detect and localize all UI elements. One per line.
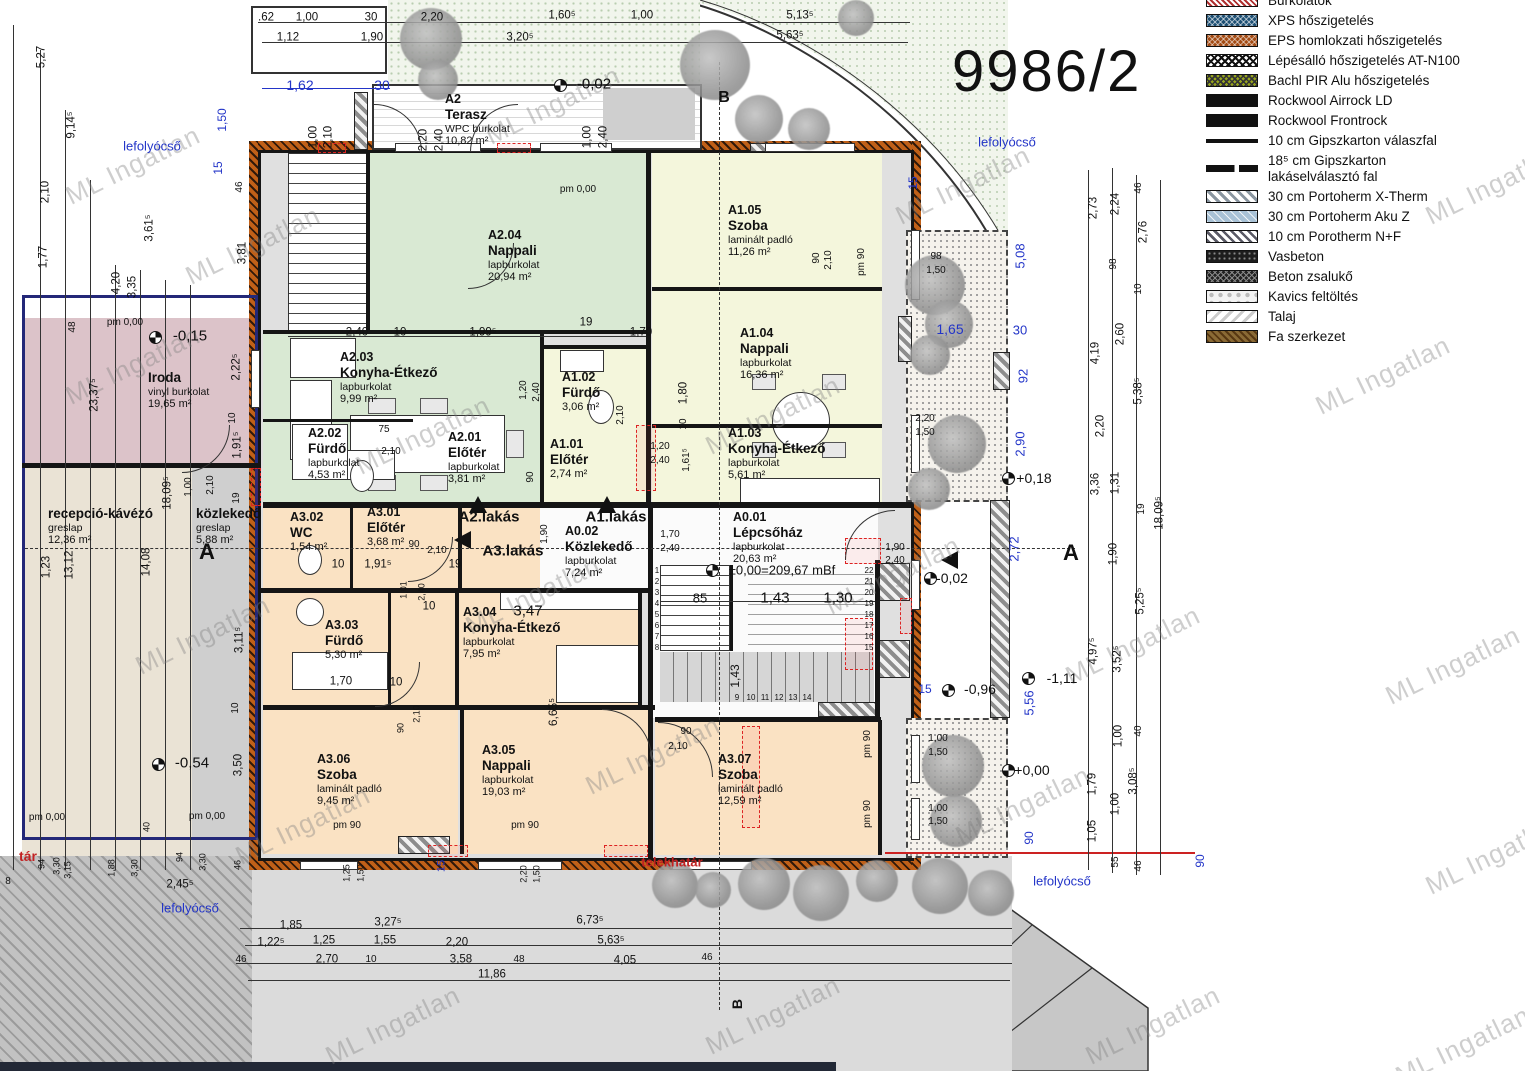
dimension-text: 5,08: [1014, 243, 1027, 268]
dbar-zone: [0, 1062, 836, 1071]
room-rid: A0.02: [565, 524, 633, 539]
dimension-text: pm 90: [333, 821, 361, 831]
dimension-text: 1,50: [533, 865, 542, 883]
dimension-text: 46: [701, 953, 712, 963]
tree: [788, 108, 830, 150]
legend-item: EPS homlokzati hőszigetelés: [1206, 33, 1524, 49]
dimension-text: A: [1063, 542, 1079, 564]
dimension-text: -0,96: [964, 682, 996, 696]
dimension-text: 1,00: [296, 12, 318, 24]
dimension-text: 2,73: [1088, 197, 1100, 219]
legend-label: Rockwool Frontrock: [1268, 113, 1387, 129]
dimension-text: 10: [394, 327, 407, 339]
dimension-text: 9: [735, 694, 739, 702]
dimension-text: 55: [1111, 856, 1121, 867]
dimension-text: 3,35: [127, 276, 139, 298]
dimension-text: 11,86: [478, 969, 506, 981]
legend-label: EPS homlokzati hőszigetelés: [1268, 33, 1442, 49]
wall: [263, 705, 655, 710]
dimension-text: 1,90: [885, 543, 904, 553]
dimension-text: 1,70: [630, 327, 652, 339]
dimension-text: 14: [803, 694, 812, 702]
fixround-zone: [296, 598, 324, 626]
room-rname: Nappali: [740, 341, 791, 357]
dimension-text: 5,63⁵: [597, 935, 624, 947]
legend-swatch-icon: [1206, 290, 1258, 303]
room-rarea: 16,36 m²: [740, 369, 791, 382]
dimension-text: A1.lakás: [586, 510, 647, 525]
room-rarea: 5,88 m²: [196, 534, 261, 547]
room-rarea: 3,06 m²: [562, 401, 600, 414]
dimension-text: 2,40: [885, 556, 904, 566]
dimension-text: 3,30: [53, 857, 62, 875]
legend-label: Beton zsalukő: [1268, 269, 1353, 285]
room-rname: Nappali: [488, 243, 539, 259]
dimension-text: 90: [1023, 831, 1035, 844]
dimension-text: 4,20: [111, 272, 123, 294]
legend-item: Vasbeton: [1206, 249, 1524, 265]
dimension-text: -0,02: [577, 77, 611, 92]
hatchd-zone: [993, 352, 1010, 390]
dimension-text: 2,72: [1008, 536, 1021, 561]
level-marker-icon: [1002, 764, 1015, 777]
dimension-text: 3,50: [233, 754, 245, 776]
dimension-text: 92: [1017, 369, 1030, 383]
dimension-text: 90: [397, 723, 406, 733]
dimension-text: 1,00: [631, 10, 653, 22]
legend-item: Bachl PIR Alu hőszigetelés: [1206, 73, 1524, 89]
dimension-line: [262, 42, 908, 43]
dimension-text: tár: [19, 849, 37, 863]
legend-swatch-icon: [1206, 210, 1258, 223]
dimension-text: 30: [374, 78, 390, 92]
room-rsub: greslap: [196, 522, 261, 534]
room-rarea: 19,65 m²: [148, 398, 209, 411]
legend-label: Talaj: [1268, 309, 1296, 325]
legend-item: Rockwool Frontrock: [1206, 113, 1524, 129]
dimension-line: [248, 980, 1010, 981]
dimension-text: 30: [1013, 324, 1027, 337]
room-rarea: 20,63 m²: [733, 553, 803, 566]
dimension-text: 48: [68, 321, 78, 332]
dimension-text: 2,40: [418, 583, 427, 601]
room-rarea: 5,30 m²: [325, 649, 363, 662]
dimension-text: 15: [212, 161, 224, 174]
fix-zone: [560, 350, 604, 372]
wall: [263, 419, 413, 422]
legend-item: Lépésálló hőszigetelés AT-N100: [1206, 53, 1524, 69]
room-rsub: lapburkolat: [308, 457, 359, 469]
room-rid: A2.01: [448, 430, 499, 445]
legend-label: 10 cm Porotherm N+F: [1268, 229, 1401, 245]
room-rid: A3.04: [463, 605, 561, 620]
room-label-a3.04: A3.04Konyha-Étkezőlapburkolat7,95 m²: [463, 605, 561, 661]
dimension-text: 90: [1194, 854, 1206, 867]
room-label-a1.01: A1.01Előtér2,74 m²: [550, 437, 588, 481]
dimension-text: 2,10: [616, 405, 626, 424]
dimension-text: 1,91⁵: [232, 431, 244, 458]
window: [911, 735, 920, 783]
dimension-text: lefolyócső: [123, 140, 181, 153]
dimension-text: 3,58: [450, 954, 472, 966]
dimension-text: 40: [1134, 725, 1144, 736]
dimension-text: +0,18: [1016, 471, 1051, 485]
room-rsub: lapburkolat: [463, 636, 561, 648]
dimension-text: 1,20: [650, 442, 669, 452]
level-marker-icon: [706, 564, 719, 577]
tree: [922, 735, 984, 797]
room-rname: Iroda: [148, 370, 209, 386]
room-label-a2: A2TeraszWPC burkolat10,82 m²: [445, 92, 510, 148]
dimension-text: pm 0,00: [107, 318, 143, 328]
legend-swatch-icon: [1206, 0, 1258, 7]
dimension-text: 19: [449, 559, 462, 571]
tree: [738, 858, 790, 910]
tree: [856, 860, 898, 902]
stairv-zone: [288, 153, 368, 333]
dimension-text: 1,31: [1110, 472, 1122, 494]
room-label-a1.03: A1.03Konyha-Étkezőlapburkolat5,61 m²: [728, 426, 826, 482]
wall: [652, 287, 882, 291]
room-label-a1.05: A1.05Szobalaminált padló11,26 m²: [728, 203, 793, 259]
tree: [838, 0, 874, 36]
legend-swatch-icon: [1206, 74, 1258, 87]
dimension-text: 3,36: [1090, 473, 1102, 495]
dimension-text: 10: [365, 955, 376, 965]
legend-label: Kavics feltöltés: [1268, 289, 1358, 305]
dimension-text: 3,30: [131, 859, 140, 877]
wall: [366, 153, 370, 333]
dimension-text: 19: [865, 600, 874, 608]
room-rid: A3.07: [718, 752, 783, 767]
room-label-a3.06: A3.06Szobalaminált padló9,45 m²: [317, 752, 382, 808]
room-label-a2.04: A2.04Nappalilapburkolat20,94 m²: [488, 228, 539, 284]
dimension-text: 2,76: [1138, 221, 1150, 243]
room-rname: Szoba: [317, 767, 382, 783]
room-rarea: 19,03 m²: [482, 786, 533, 799]
room-rarea: 1,54 m²: [290, 541, 327, 554]
dimension-text: 1,05: [1087, 820, 1099, 842]
wall: [730, 565, 733, 651]
dimension-text: 1,00: [184, 477, 194, 496]
room-label: közlekedőgreslap5,88 m²: [196, 506, 261, 547]
hatchd-zone: [878, 640, 910, 678]
room-rname: Lépcsőház: [733, 525, 803, 541]
section-line: [719, 62, 720, 1010]
room-rsub: lapburkolat: [340, 381, 438, 393]
room-rarea: 9,45 m²: [317, 795, 382, 808]
dimension-text: 10: [332, 559, 345, 571]
entrance-arrow-icon: [454, 531, 471, 549]
legend-swatch-icon: [1206, 250, 1258, 263]
room-rarea: 9,99 m²: [340, 393, 438, 406]
dimension-text: pm 90: [863, 730, 873, 758]
dimension-text: 14,08: [141, 548, 153, 577]
legend-item: 10 cm Gipszkarton válaszfal: [1206, 133, 1524, 149]
dimension-text: pm 90: [863, 800, 873, 828]
wall: [455, 590, 459, 705]
dimension-text: 1,30: [823, 591, 852, 606]
dimension-text: 1,65: [936, 322, 963, 336]
dimension-text: 46: [235, 955, 246, 965]
room-rname: Közlekedő: [565, 539, 633, 555]
legend-swatch-icon: [1206, 270, 1258, 283]
room-rsub: lapburkolat: [488, 259, 539, 271]
dimension-text: 4,19: [1090, 342, 1102, 364]
wall: [258, 588, 648, 593]
legend-swatch-icon: [1206, 139, 1258, 143]
dimension-text: 4,05: [614, 955, 636, 967]
dimension-text: 1,60⁵: [548, 10, 575, 22]
dimension-text: 23,37⁵: [89, 378, 101, 412]
room-rid: A3.06: [317, 752, 382, 767]
window: [911, 798, 920, 840]
dimension-text: 2,40: [346, 327, 368, 339]
dimension-text: 1,80: [678, 382, 690, 404]
dimension-text: 1,25: [343, 864, 352, 882]
dimension-text: pm 0,00: [29, 813, 65, 823]
room-rname: közlekedő: [196, 506, 261, 522]
dimension-text: 5,25⁵: [1135, 587, 1147, 614]
legend-label: Rockwool Airrock LD: [1268, 93, 1393, 109]
dimension-text: 2,10: [323, 126, 335, 148]
room-rname: Fürdő: [562, 385, 600, 401]
dimension-text: pm 90: [511, 821, 539, 831]
legend: BurkolatokXPS hőszigetelésEPS homlokzati…: [1206, 0, 1524, 344]
dimension-text: 5,13⁵: [786, 10, 813, 22]
dimension-text: 15: [865, 644, 874, 652]
dimension-text: 48: [513, 955, 524, 965]
wall: [263, 330, 648, 334]
dimension-text: 1: [655, 567, 659, 575]
legend-item: Kavics feltöltés: [1206, 289, 1524, 305]
dimension-text: 1,50: [216, 108, 228, 131]
room-rid: A2: [445, 92, 510, 107]
dimension-text: 3,81: [237, 242, 249, 264]
dimension-text: 1,50: [926, 266, 945, 276]
dimension-text: 3,30: [199, 853, 208, 871]
insulation-marker: [251, 468, 261, 506]
dimension-text: 98: [1109, 258, 1119, 269]
room-rsub: lapburkolat: [733, 541, 803, 553]
dimension-text: A3.lakás: [483, 544, 544, 559]
dimension-text: 98: [930, 252, 941, 262]
dimension-text: 3,20⁵: [506, 32, 533, 44]
room-label-a1.02: A1.02Fürdő3,06 m²: [562, 370, 600, 414]
dimension-text: 15: [907, 176, 919, 189]
dimension-text: 1,12: [277, 32, 299, 44]
room-rname: recepció-kávézó: [48, 506, 153, 522]
room-rname: Nappali: [482, 758, 533, 774]
room-rarea: 4,53 m²: [308, 469, 359, 482]
dimension-text: 18: [865, 611, 874, 619]
dimension-text: 2,22⁵: [231, 353, 243, 380]
dimension-text: 1,90: [1108, 543, 1120, 565]
dimension-text: 2,10: [427, 546, 446, 556]
dimension-text: -1,11: [1047, 671, 1078, 685]
dimension-text: 2,60: [1115, 323, 1127, 345]
room-rid: A1.01: [550, 437, 588, 452]
legend-label: Burkolatok: [1268, 0, 1332, 9]
dimension-text: 1,77: [38, 246, 50, 268]
dimension-text: 1,50: [915, 428, 934, 438]
dimension-text: 2,10: [40, 181, 52, 203]
room-rarea: 2,74 m²: [550, 468, 588, 481]
dimension-text: 2: [655, 578, 659, 586]
room-rname: Előtér: [367, 520, 405, 536]
dimension-text: 5,27: [36, 46, 48, 68]
dimension-text: 3,52⁵: [1112, 645, 1124, 672]
dimension-text: 18,09⁵: [1154, 496, 1166, 530]
dimension-text: 46: [235, 181, 245, 192]
dimension-text: 1,55: [374, 935, 396, 947]
dimension-text: 1,70: [330, 676, 352, 688]
dimension-line: [40, 50, 41, 870]
room-label: recepció-kávézógreslap12,36 m²: [48, 506, 153, 547]
legend-swatch-icon: [1206, 330, 1258, 343]
wall: [263, 502, 911, 508]
room-rid: A3.03: [325, 618, 363, 633]
dimension-text: 10: [679, 418, 689, 429]
tree: [912, 858, 968, 914]
room-rarea: 3,81 m²: [448, 473, 499, 486]
dimension-text: 4,97⁵: [1088, 637, 1100, 664]
insulation-marker: [900, 598, 912, 634]
dimension-text: 9,14⁵: [66, 111, 78, 138]
level-marker-icon: [152, 758, 165, 771]
room-rsub: lapburkolat: [740, 357, 791, 369]
legend-label: 30 cm Portoherm X-Therm: [1268, 189, 1428, 205]
dimension-text: 19: [1137, 503, 1147, 514]
room-rsub: lapburkolat: [482, 774, 533, 786]
dimension-text: 2,40: [660, 544, 679, 554]
dimension-text: 6,73⁵: [576, 915, 603, 927]
room-rarea: 12,59 m²: [718, 795, 783, 808]
legend-swatch-icon: [1206, 114, 1258, 127]
room-label-a3.01: A3.01Előtér3,68 m²: [367, 505, 405, 549]
room-rid: A1.02: [562, 370, 600, 385]
dimension-text: 2,10: [413, 705, 422, 723]
dimension-line: [1088, 170, 1089, 870]
wall: [460, 707, 464, 854]
dimension-text: 10: [423, 601, 436, 613]
room-rsub: laminált padló: [728, 234, 793, 246]
soil-zone: [0, 856, 252, 1071]
room-rsub: lapburkolat: [565, 555, 633, 567]
dimension-text: 16: [865, 633, 874, 641]
room-rid: A2.04: [488, 228, 539, 243]
dimension-text: 1,50: [928, 748, 947, 758]
legend-item: 30 cm Portoherm Aku Z: [1206, 209, 1524, 225]
dimension-text: 5: [655, 611, 659, 619]
room-label-a3.02: A3.02WC1,54 m²: [290, 510, 327, 554]
room-rsub: vinyl burkolat: [148, 386, 209, 398]
room-rarea: 20,94 m²: [488, 271, 539, 284]
dimension-text: +0,00: [1014, 763, 1049, 777]
dimension-text: 5,38⁵: [1133, 377, 1145, 404]
redline-zone: [885, 852, 1195, 854]
dimension-text: 19: [580, 317, 593, 329]
hatchd-zone: [354, 92, 368, 150]
tree: [793, 865, 849, 921]
room-rid: A0.01: [733, 510, 803, 525]
dimension-text: 90: [526, 471, 536, 482]
legend-swatch-icon: [1206, 310, 1258, 323]
room-rsub: lapburkolat: [448, 461, 499, 473]
room-label-a0.01: A0.01Lépcsőházlapburkolat20,63 m²: [733, 510, 803, 566]
dimension-text: 1,00: [308, 126, 320, 148]
dimension-text: 10: [231, 702, 241, 713]
dimension-text: -0,02: [936, 571, 968, 585]
room-rarea: 3,68 m²: [367, 536, 405, 549]
room-rname: Szoba: [718, 767, 783, 783]
dimension-text: 2,20: [520, 865, 529, 883]
dimension-line: [1112, 168, 1113, 873]
dimension-text: 1,90: [540, 524, 550, 543]
dimension-text: lefolyócső: [978, 136, 1036, 149]
legend-swatch-icon: [1206, 165, 1258, 172]
room-rid: A2.03: [340, 350, 438, 365]
hatchd-zone: [818, 702, 878, 717]
dimension-text: .62: [258, 12, 274, 24]
dimension-text: 3,15: [64, 861, 73, 879]
dimension-text: 2,90: [1014, 431, 1027, 456]
legend-label: Lépésálló hőszigetelés AT-N100: [1268, 53, 1460, 69]
legend-label: 30 cm Portoherm Aku Z: [1268, 209, 1410, 225]
dimension-text: pm 0,00: [560, 185, 596, 195]
dimension-text: 1,22⁵: [257, 937, 284, 949]
room-rname: Fürdő: [308, 441, 359, 457]
dimension-text: 46: [1134, 860, 1144, 871]
dimension-text: 7: [655, 633, 659, 641]
dimension-text: B: [718, 90, 730, 106]
legend-item: Burkolatok: [1206, 0, 1524, 9]
dimension-text: 2,70: [316, 954, 338, 966]
dimension-text: 1,00: [1113, 725, 1125, 747]
dimension-text: 2,20: [915, 414, 934, 424]
dimension-line: [13, 25, 14, 870]
plot-number: 9986/2: [952, 38, 1141, 105]
dimension-text: 1,20: [519, 380, 529, 399]
dimension-text: pm 90: [857, 248, 867, 276]
dimension-text: B: [730, 999, 744, 1009]
legend-swatch-icon: [1206, 94, 1258, 107]
dimension-text: 1,61⁵: [682, 448, 692, 472]
room-rid: A1.05: [728, 203, 793, 218]
legend-item: Rockwool Airrock LD: [1206, 93, 1524, 109]
room-rname: Konyha-Étkező: [340, 365, 438, 381]
dimension-line: [65, 110, 66, 870]
legend-swatch-icon: [1206, 230, 1258, 243]
legend-item: Talaj: [1206, 309, 1524, 325]
room-rname: Szoba: [728, 218, 793, 234]
room-rsub: WPC burkolat: [445, 123, 510, 135]
dimension-text: 8: [5, 877, 11, 887]
dimension-text: 1,43: [729, 664, 741, 687]
room-rarea: 10,82 m²: [445, 135, 510, 148]
dimension-text: 1,00: [1110, 793, 1122, 815]
dimension-text: 2,10: [668, 742, 687, 752]
dimension-text: 1,91⁵: [364, 559, 391, 571]
legend-swatch-icon: [1206, 34, 1258, 47]
dimension-text: 6: [655, 622, 659, 630]
room-rid: A2.02: [308, 426, 359, 441]
wall: [648, 506, 653, 858]
dimension-text: 1,50: [928, 817, 947, 827]
dimension-text: 90: [812, 252, 822, 263]
room-rarea: 11,26 m²: [728, 246, 793, 259]
dimension-text: 1,00: [928, 804, 947, 814]
